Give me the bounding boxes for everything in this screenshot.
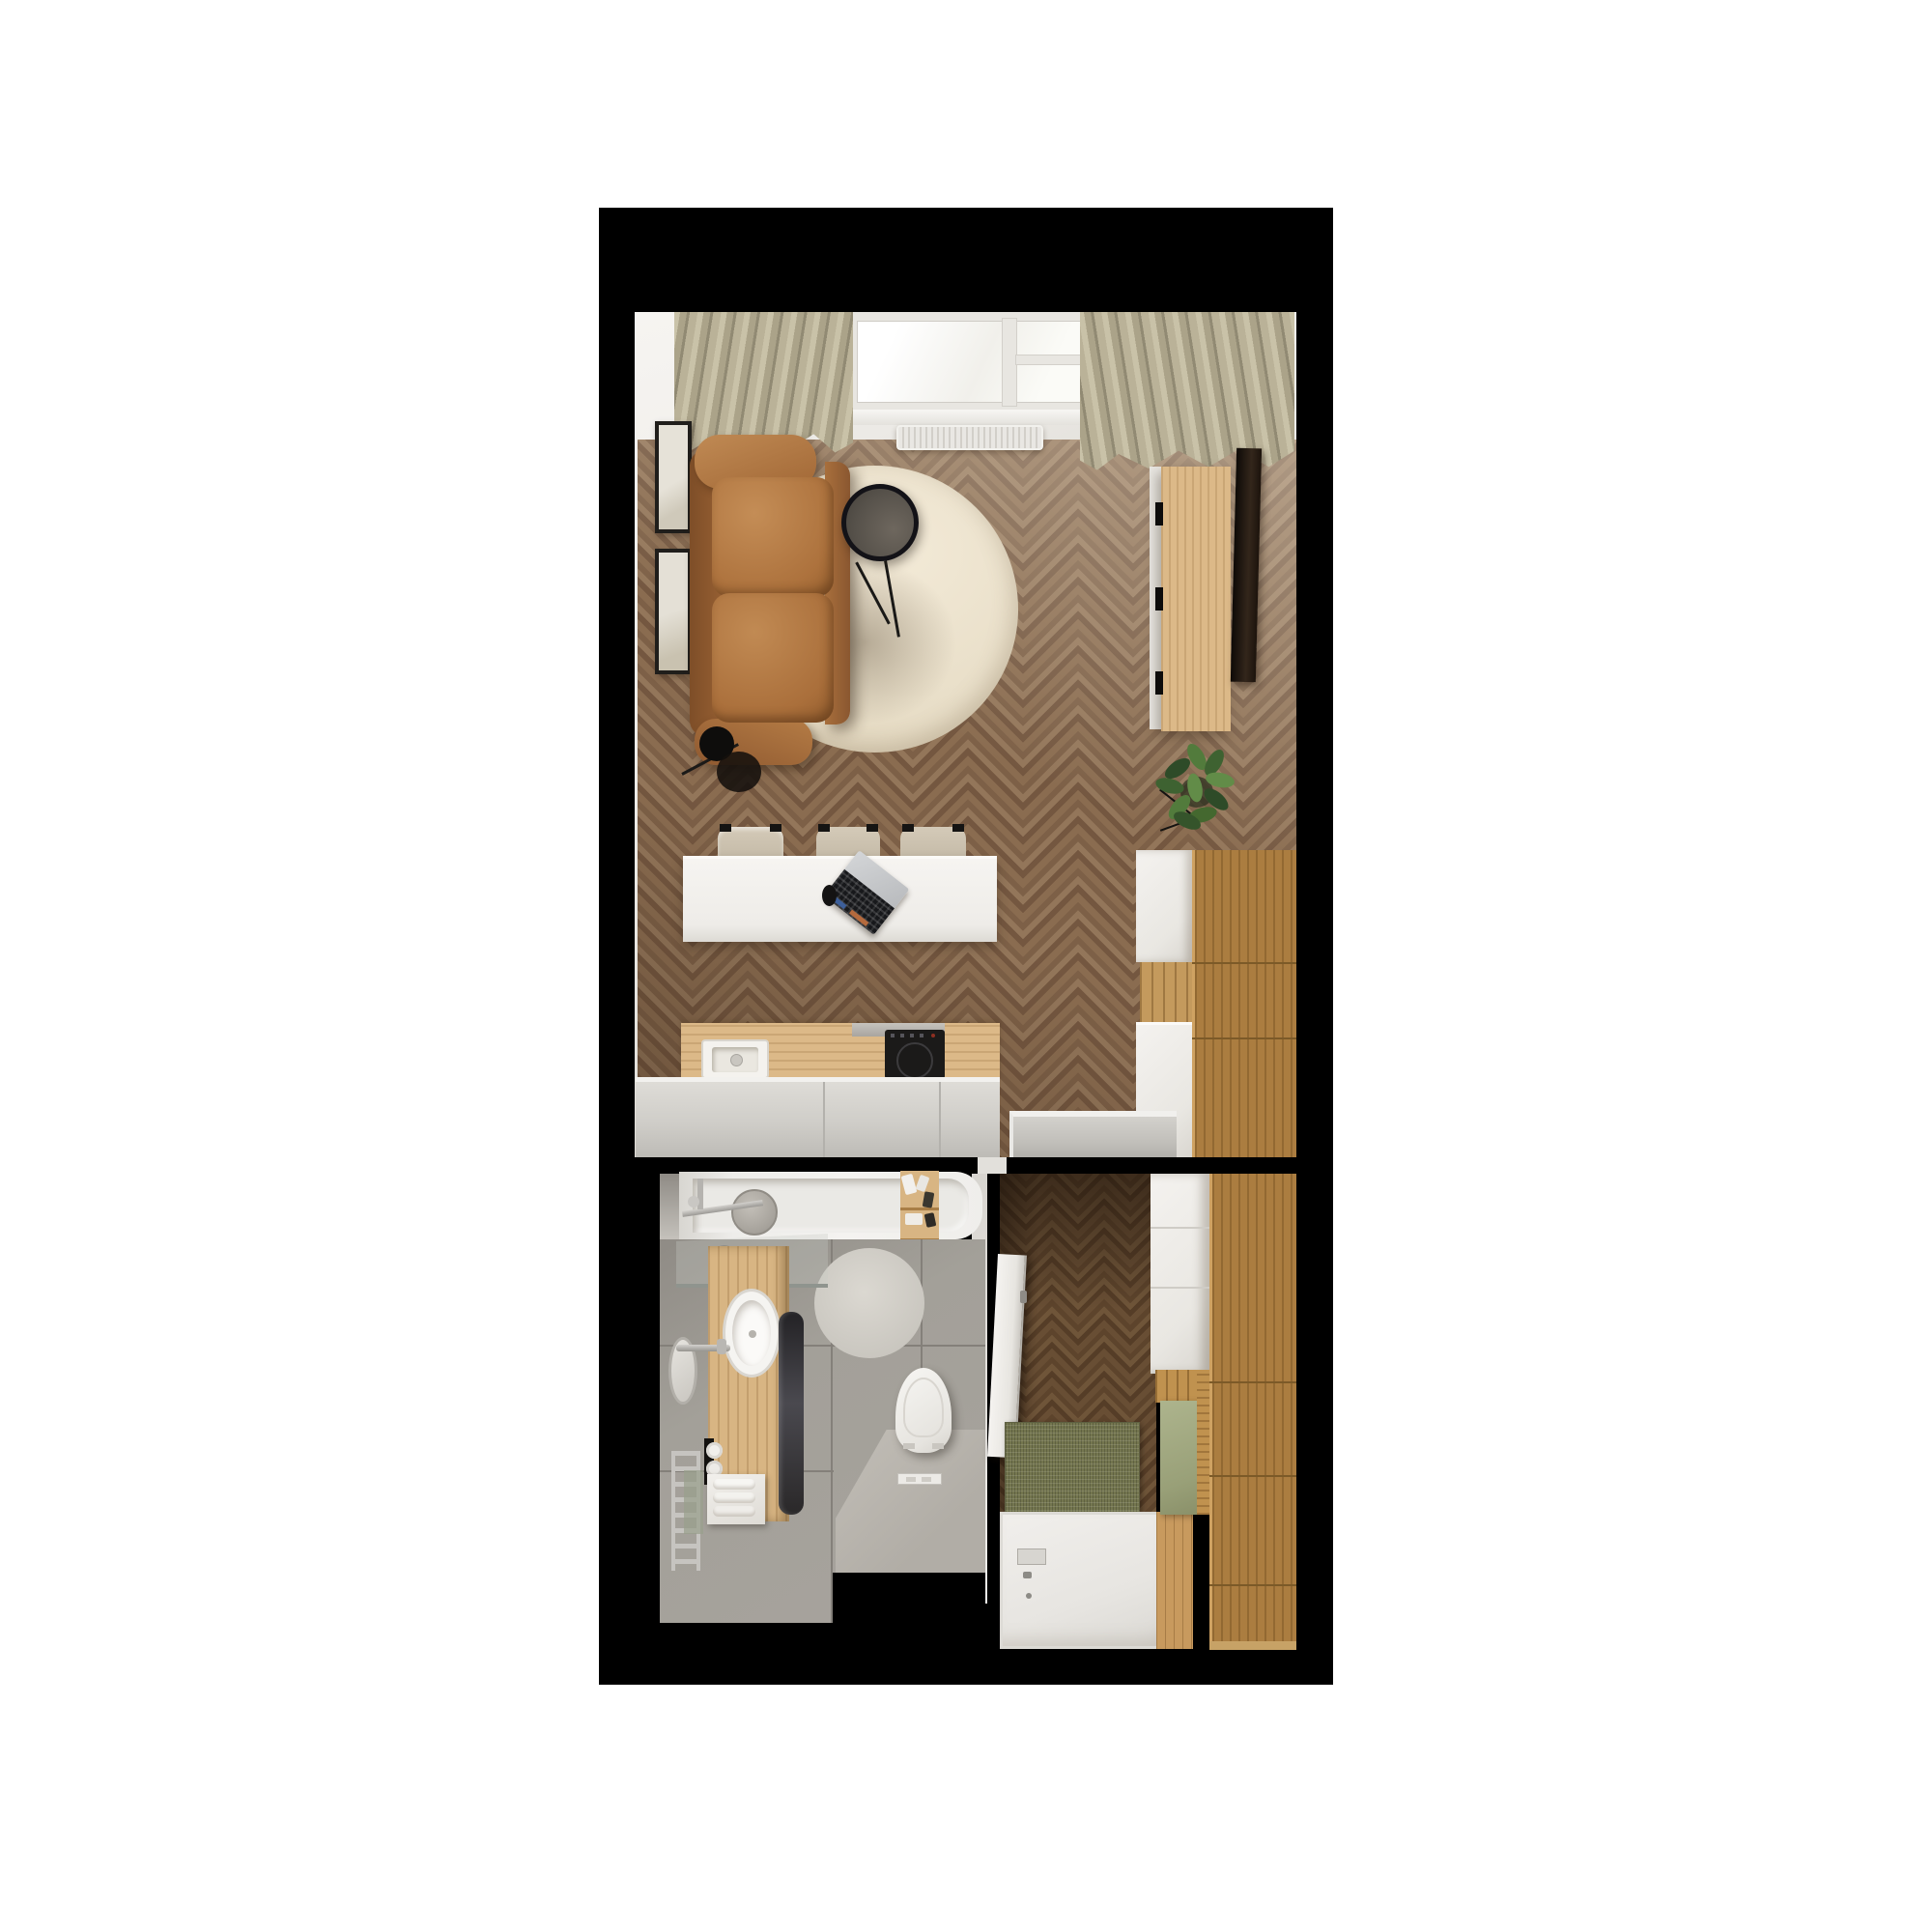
sink-drain <box>730 1054 743 1066</box>
wall-art-frame <box>655 421 692 533</box>
towel-box <box>707 1474 765 1524</box>
rolled-towel <box>713 1479 755 1490</box>
cabinet-seam <box>939 1082 941 1157</box>
coffee-table <box>841 484 919 561</box>
cabinet-seam <box>823 1082 825 1157</box>
cooktop-indicator <box>931 1034 935 1037</box>
toilet-paper-roll <box>706 1442 723 1459</box>
flush-button <box>906 1477 916 1482</box>
rolled-towel <box>713 1506 755 1517</box>
wardrobe-upper-white <box>1136 850 1192 962</box>
washing-machine <box>779 1312 804 1515</box>
entry-bench <box>1009 1111 1177 1157</box>
cooktop-ring <box>896 1042 933 1079</box>
caddy-bottle <box>901 1174 918 1195</box>
panel-seam <box>1151 1287 1209 1289</box>
toilet-hinge <box>903 1443 915 1449</box>
plant <box>1153 746 1236 837</box>
flush-button <box>922 1477 931 1482</box>
entry-door-panel <box>1000 1512 1179 1649</box>
niche-oak-trim <box>1197 1370 1209 1515</box>
caddy-item-dark <box>924 1212 937 1228</box>
chair-armrest <box>720 824 731 832</box>
cabinet-seam <box>1209 1475 1296 1477</box>
shower-handle <box>688 1196 699 1207</box>
cooktop-controls <box>891 1034 929 1037</box>
chair-armrest <box>818 824 830 832</box>
floor-plan-canvas <box>0 0 1932 1932</box>
green-locker-panel <box>1160 1401 1199 1515</box>
toilet-lid-line <box>903 1378 944 1437</box>
panel-seam <box>1151 1227 1209 1229</box>
basin <box>723 1289 781 1378</box>
curtain-right <box>1080 312 1294 473</box>
rain-shower-head <box>731 1189 778 1236</box>
tv-console <box>1161 467 1231 731</box>
cabinet-seam <box>1209 1584 1296 1586</box>
kitchen-cabinet-front <box>636 1077 1000 1157</box>
doorway-threshold <box>978 1157 1007 1174</box>
chair-armrest <box>867 824 878 832</box>
radiator-backpanel <box>684 1470 703 1534</box>
sofa-cushion <box>712 593 834 723</box>
cooktop <box>885 1030 945 1079</box>
floor-lamp-shadow <box>717 752 761 792</box>
sofa-cushion <box>712 477 834 597</box>
door-handle <box>1020 1291 1027 1303</box>
kitchen-sink <box>701 1039 769 1079</box>
cabinet-seam <box>1209 1381 1296 1383</box>
wardrobe-niche <box>1140 962 1192 1022</box>
console-handle <box>1155 502 1163 526</box>
door-hardware-plate <box>1017 1548 1046 1565</box>
floor-cutout <box>833 1573 985 1623</box>
radiator <box>896 425 1043 450</box>
rolled-towel <box>713 1492 755 1503</box>
caddy-towel <box>905 1213 923 1225</box>
chair-armrest <box>902 824 914 832</box>
door-hardware-dot <box>1026 1593 1032 1599</box>
console-handle <box>1155 587 1163 611</box>
cabinet-base <box>1209 1641 1296 1650</box>
curtain-left <box>674 312 853 454</box>
wall-art-frame <box>655 549 692 674</box>
chair-armrest <box>770 824 781 832</box>
chair-armrest <box>952 824 964 832</box>
faucet-handle <box>717 1339 726 1354</box>
caddy-shelf-line <box>900 1207 939 1210</box>
wardrobe-tall-oak <box>1192 850 1296 1157</box>
hall-tall-cabinet <box>1209 1174 1296 1641</box>
window-mullion <box>1003 319 1016 406</box>
console-handle <box>1155 671 1163 695</box>
wardrobe-seam <box>1192 1037 1296 1039</box>
oak-floorboard-strip <box>1156 1512 1193 1649</box>
toilet-hinge <box>932 1443 944 1449</box>
hall-wardrobe-white-panels <box>1151 1174 1209 1374</box>
shower-caddy <box>900 1171 939 1240</box>
caddy-bottle-dark <box>923 1191 935 1207</box>
door-hardware-dot <box>1023 1572 1032 1578</box>
round-bath-mat <box>814 1248 924 1358</box>
doormat <box>1005 1422 1140 1516</box>
basin-drain <box>749 1330 756 1338</box>
mouse <box>822 885 837 906</box>
flush-plate <box>897 1473 942 1485</box>
caddy-bottle <box>916 1175 930 1192</box>
wardrobe-seam <box>1192 962 1296 964</box>
